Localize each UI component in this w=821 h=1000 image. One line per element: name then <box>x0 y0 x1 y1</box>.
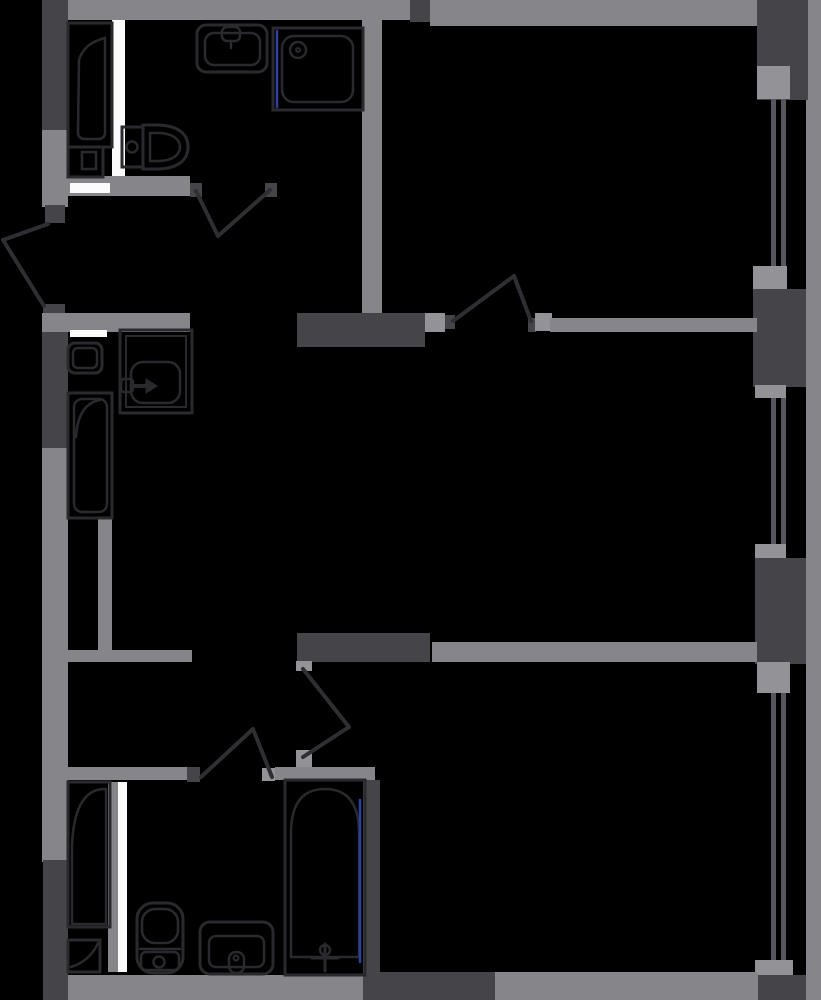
toilet-1-bowl-inner <box>150 133 180 161</box>
bathtub-2-basin <box>74 399 107 512</box>
bath3-door-swing <box>253 729 272 777</box>
room3-door-swing <box>303 727 349 757</box>
bath1-door-swing <box>218 190 270 236</box>
entry-door-leaf <box>3 224 48 240</box>
vanity-2-inner <box>126 336 186 407</box>
washer-2-inner <box>73 348 97 368</box>
sink-3-faucet-dot <box>234 956 239 961</box>
washer-1-inner <box>82 152 96 169</box>
bathtub-2-curve <box>76 400 100 437</box>
shower-1-tray <box>282 36 353 102</box>
toilet-1-tank <box>122 127 143 167</box>
mid-door-leaf <box>453 276 514 321</box>
bath3-door-leaf <box>201 729 253 777</box>
mid-door-swing <box>514 276 531 321</box>
bath1-door-leaf <box>196 191 218 236</box>
bathtub-1-basin <box>78 38 105 139</box>
vanity-2-tap-arrow <box>146 379 157 393</box>
bathtub-3-basin <box>72 789 106 924</box>
entry-door-swing <box>3 240 44 306</box>
corner-sink-3-arc <box>71 943 98 967</box>
vanity-2-basin <box>131 362 180 403</box>
shower-1-drain-dot <box>296 48 300 52</box>
room3-door-leaf <box>303 669 349 727</box>
bathtub-4-basin <box>291 789 359 957</box>
toilet-1-button <box>127 142 138 153</box>
floor-plan-canvas <box>0 0 821 1000</box>
sink-1-basin <box>205 33 260 65</box>
toilet-3-inner <box>142 909 178 943</box>
bathtub-3-outline <box>68 782 110 927</box>
shower-1-drain <box>290 42 306 58</box>
fixtures-layer <box>0 0 821 1000</box>
toilet-3-button <box>154 957 165 968</box>
